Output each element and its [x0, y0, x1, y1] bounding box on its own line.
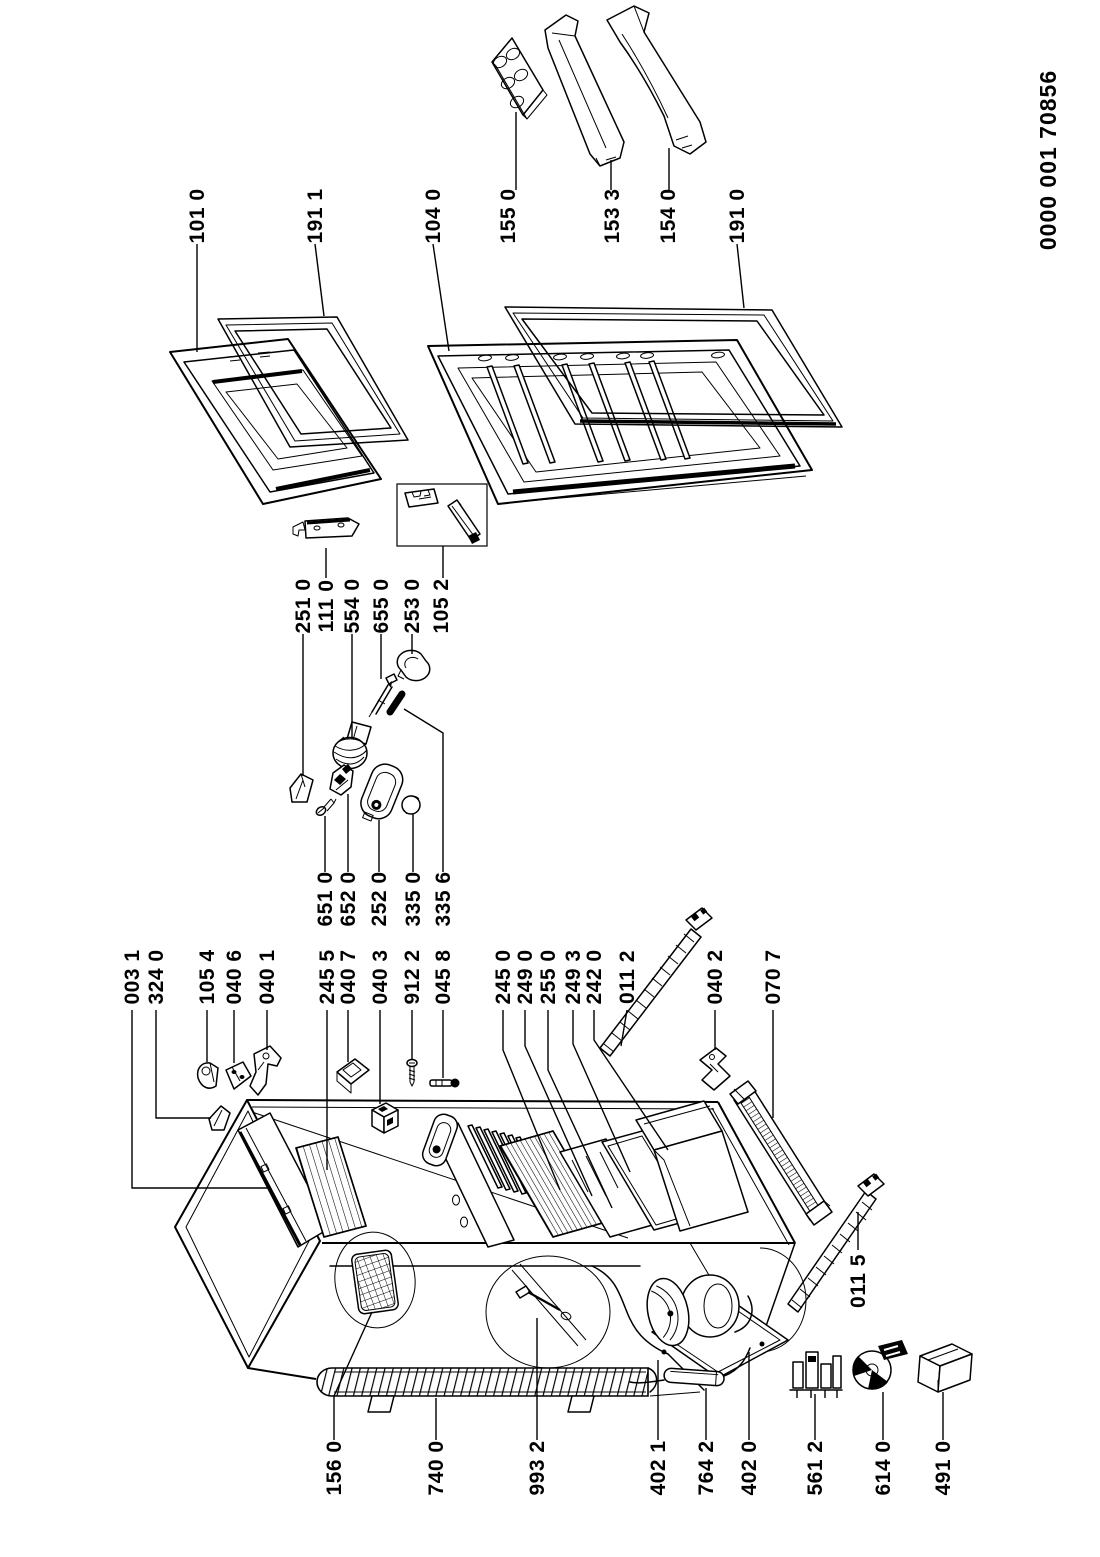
part-bracket-040-7 — [337, 1059, 369, 1093]
part-label-191-0: 191 0 — [726, 188, 749, 243]
part-label-040-2: 040 2 — [704, 949, 727, 1004]
part-label-155-0: 155 0 — [497, 188, 520, 243]
part-egg-tray — [491, 38, 547, 119]
part-label-011-2: 011 2 — [616, 950, 639, 1004]
part-lamp-housing — [355, 760, 407, 827]
part-label-255-0: 255 0 — [537, 949, 560, 1004]
part-label-740-0: 740 0 — [425, 1440, 448, 1495]
part-hinge-top-bracket — [372, 1103, 398, 1133]
part-defrost-drain-detail — [486, 1256, 610, 1368]
part-label-249-0: 249 0 — [514, 949, 537, 1004]
part-hinge-bushing — [198, 1063, 218, 1088]
part-label-191-1: 191 1 — [304, 188, 327, 243]
part-clip-324-0 — [209, 1106, 230, 1130]
part-label-652-0: 652 0 — [337, 871, 360, 926]
part-label-105-2: 105 2 — [430, 578, 453, 633]
part-door-closer-clip — [405, 489, 438, 507]
part-label-249-3: 249 3 — [562, 949, 585, 1004]
part-label-101-0: 101 0 — [186, 188, 209, 243]
part-label-491-0: 491 0 — [932, 1440, 955, 1495]
part-label-764-2: 764 2 — [695, 1440, 718, 1495]
part-label-104-0: 104 0 — [422, 188, 445, 243]
part-label-561-2: 561 2 — [804, 1440, 827, 1495]
part-label-040-6: 040 6 — [223, 949, 246, 1004]
part-hinge-bracket-040-1 — [250, 1046, 281, 1095]
part-label-993-2: 993 2 — [526, 1440, 549, 1495]
part-label-253-0: 253 0 — [401, 578, 424, 633]
leader-191-0 — [737, 244, 744, 308]
part-label-402-1: 402 1 — [647, 1440, 670, 1495]
part-label-324-0: 324 0 — [145, 949, 168, 1004]
part-terminal-cover — [918, 1344, 972, 1392]
part-compressor — [641, 1275, 788, 1378]
part-starter-device — [790, 1352, 842, 1398]
part-cover-corner — [290, 774, 313, 802]
part-label-153-3: 153 3 — [601, 188, 624, 243]
part-label-252-0: 252 0 — [368, 871, 391, 926]
leader-191-1 — [315, 244, 324, 316]
part-label-651-0: 651 0 — [314, 871, 337, 926]
part-label-105-4: 105 4 — [196, 949, 219, 1004]
part-label-335-6: 335 6 — [432, 871, 455, 926]
leader-335-6 — [404, 709, 443, 872]
part-screw-912-2 — [407, 1060, 417, 1087]
part-relay — [853, 1340, 908, 1390]
leader-104-0 — [433, 244, 449, 351]
part-label-402-0: 402 0 — [738, 1440, 761, 1495]
doc-number: 0000 001 70856 — [1035, 70, 1061, 250]
part-knob-cap — [402, 796, 420, 814]
part-label-912-2: 912 2 — [401, 949, 424, 1004]
part-label-003-1: 003 1 — [121, 949, 144, 1004]
part-screw-small — [315, 799, 336, 817]
part-lamp-socket — [330, 764, 353, 795]
part-label-040-3: 040 3 — [369, 949, 392, 1004]
part-tube-sleeve — [390, 694, 402, 712]
part-label-040-1: 040 1 — [256, 949, 279, 1004]
part-label-335-0: 335 0 — [402, 871, 425, 926]
part-label-154-0: 154 0 — [657, 188, 680, 243]
diagram-svg: 101 0 191 1 104 0 155 0 153 3 154 0 191 … — [0, 0, 1100, 1557]
part-label-245-5: 245 5 — [316, 949, 339, 1004]
part-bracket-040-6 — [226, 1062, 251, 1089]
group-hinge-kit-box — [397, 484, 487, 546]
part-label-111-0: 111 0 — [315, 580, 338, 633]
part-label-045-8: 045 8 — [432, 949, 455, 1004]
part-tube-clamp — [397, 650, 430, 680]
part-label-655-0: 655 0 — [370, 578, 393, 633]
part-label-040-7: 040 7 — [337, 949, 360, 1004]
part-label-011-5: 011 5 — [847, 1254, 870, 1308]
part-label-070-7: 070 7 — [762, 949, 785, 1004]
part-condenser — [317, 1368, 657, 1412]
part-bracket-040-2 — [700, 1048, 730, 1090]
part-label-242-0: 242 0 — [583, 949, 606, 1004]
part-label-614-0: 614 0 — [872, 1440, 895, 1495]
diagram-page: 101 0 191 1 104 0 155 0 153 3 154 0 191 … — [0, 0, 1100, 1557]
part-label-245-0: 245 0 — [492, 949, 515, 1004]
part-label-554-0: 554 0 — [341, 578, 364, 633]
part-hinge-pin-rail — [448, 500, 480, 544]
part-label-251-0: 251 0 — [292, 578, 315, 633]
part-pin-045-8 — [430, 1079, 460, 1088]
part-label-156-0: 156 0 — [323, 1440, 346, 1495]
part-handle-lower — [607, 6, 706, 154]
part-handle-upper — [545, 15, 624, 166]
part-lamp-cover-plate — [293, 518, 359, 538]
